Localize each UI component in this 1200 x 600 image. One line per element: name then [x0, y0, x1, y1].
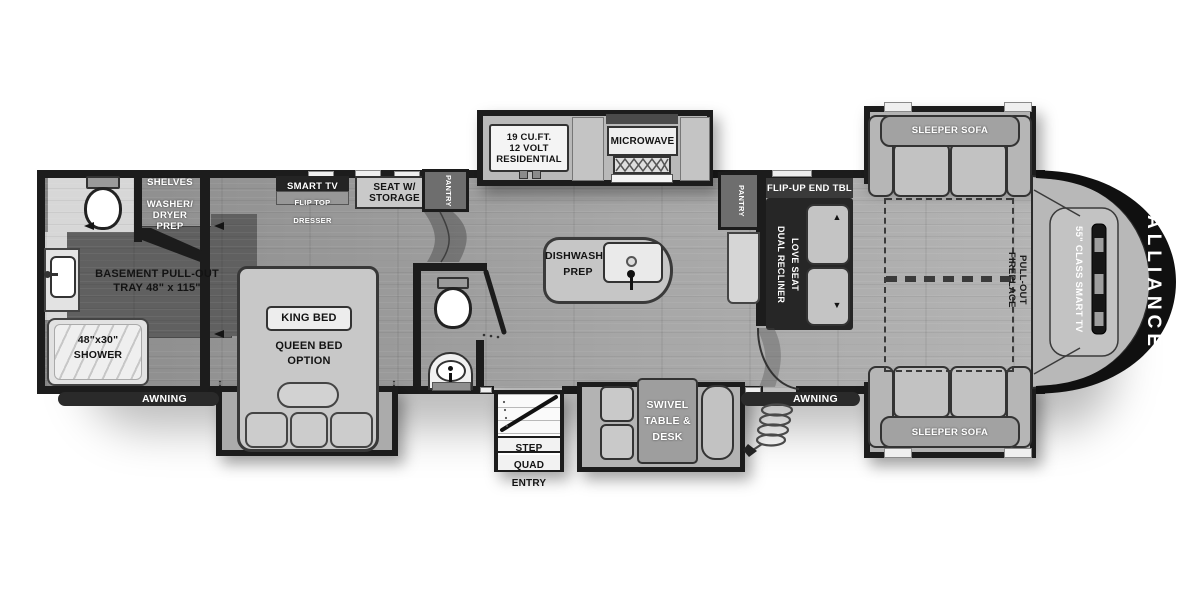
sofa-top-cushion [893, 143, 950, 197]
dinette-chair [600, 424, 634, 460]
midbath-counter [432, 382, 471, 391]
sofa-bottom-cushion [950, 366, 1007, 418]
bedroom-pantry-label: PANTRY [439, 172, 453, 209]
basement-tray-label: BASEMENT PULL-OUT TRAY 48" x 115" [77, 268, 237, 294]
seat-line1: SEAT W/ [373, 182, 415, 193]
swivel-line1: SWIVEL [646, 399, 688, 411]
awning-right: AWNING [741, 392, 860, 406]
smart-tv-cabinet: SMART TV [276, 176, 349, 191]
bottom-wall-c [562, 386, 578, 394]
slide-marker: ↕ [388, 378, 400, 389]
sofa-top-cushion [950, 143, 1007, 197]
slide-guide-dashed [886, 198, 1012, 200]
slide-endcap [884, 448, 912, 458]
loveseat-label-line2: LOVE SEAT [786, 222, 800, 308]
fridge-line2: 12 VOLT [509, 143, 548, 154]
flip-top-dresser: FLIP TOP DRESSER [276, 191, 349, 205]
quad-entry-band: QUAD ENTRY [498, 455, 560, 470]
island-line2: PREP [545, 266, 611, 278]
slide-guide-dashed [886, 370, 1012, 372]
loveseat-label-line1: DUAL RECLINER [772, 204, 786, 326]
washer-line2: DRYER PREP [138, 210, 202, 232]
rear-sink-faucet-stem [50, 273, 58, 276]
seat-line2: STORAGE [369, 193, 420, 204]
kitchen-counter-left [572, 117, 604, 181]
window [772, 170, 812, 177]
shower-line2: SHOWER [54, 349, 142, 361]
step-threshold [480, 387, 492, 393]
quad-entry-label: QUAD ENTRY [512, 460, 547, 489]
fireplace-label-line2: STORAGE [1029, 250, 1043, 312]
fridge-foot [532, 170, 541, 179]
flip-top-dresser-label: FLIP TOP DRESSER [293, 198, 331, 225]
island-sink-drain-icon [626, 256, 637, 267]
entry-cabinet [727, 232, 760, 304]
midbath-top-wall [413, 263, 487, 271]
sofa-bottom-back: SLEEPER SOFA [880, 416, 1020, 448]
microwave-label: MICROWAVE [611, 136, 675, 147]
shelves-label: SHELVES [138, 177, 202, 188]
loveseat-seat-top [806, 204, 850, 265]
kitchen-counter-right [680, 117, 710, 181]
loveseat-seat-bottom [806, 267, 850, 326]
fridge-line3: RESIDENTIAL [496, 154, 562, 165]
sofa-top-back: SLEEPER SOFA [880, 115, 1020, 147]
island-label: DISHWASHER PREP [545, 250, 611, 278]
shower-line1: 48"x30" [54, 334, 142, 346]
tv-label: 55" CLASS SMART TV [1070, 222, 1084, 336]
bed-pillow [330, 412, 373, 448]
dinette-chair [600, 386, 634, 422]
sofa-bottom-cushion [893, 366, 950, 418]
nose-seam [1034, 190, 1080, 216]
microwave: MICROWAVE [607, 126, 678, 156]
slide-endcap [884, 102, 912, 112]
microwave-hood [606, 114, 678, 124]
fridge: 19 CU.FT. 12 VOLT RESIDENTIAL [489, 124, 569, 172]
fireplace-label-line1: PULL-OUT FIREPLACE [1014, 226, 1028, 334]
plug-icon [743, 444, 757, 457]
flip-up-end-table-label: FLIP-UP END TBL [767, 183, 852, 194]
rear-sink-basin [50, 256, 76, 298]
slide-marker: ↕ [214, 378, 226, 389]
pullout-arrow-icon [84, 222, 94, 230]
bedroom-pantry: PANTRY [422, 169, 469, 212]
basement-line1: BASEMENT PULL-OUT [77, 268, 237, 280]
slide-endcap [1004, 448, 1032, 458]
shower-label: 48"x30" SHOWER [54, 334, 142, 361]
queen-option-label: QUEEN BED OPTION [251, 340, 367, 367]
steps-treads [498, 394, 560, 434]
bed-bolster [277, 382, 339, 408]
shelves-text: SHELVES [147, 177, 193, 188]
basement-line2: TRAY 48" x 115" [77, 282, 237, 294]
midbath-faucet-icon [448, 366, 453, 371]
fridge-foot [519, 170, 528, 179]
washer-dryer-label: WASHER/ DRYER PREP [138, 199, 202, 232]
brand-logo: ALLIANCE [1138, 209, 1164, 357]
swivel-table: SWIVEL TABLE & DESK [637, 378, 698, 464]
flip-up-end-table: FLIP-UP END TBL [766, 178, 853, 198]
dinette-bench [701, 385, 734, 460]
king-bed-tag: KING BED [266, 306, 352, 331]
rv-floorplan: SHELVES WASHER/ DRYER PREP 48"x30" SHOWE… [0, 0, 1200, 600]
washer-line1: WASHER/ [138, 199, 202, 210]
king-bed-label: KING BED [281, 312, 336, 324]
sofa-bottom-label: SLEEPER SOFA [912, 427, 988, 438]
awning-left-label: AWNING [58, 392, 219, 406]
range-icon [613, 156, 671, 174]
swivel-line3: DESK [652, 431, 682, 443]
pullout-arrow-icon [214, 222, 224, 230]
midbath-toilet-icon [434, 287, 472, 329]
kitchen-pantry: PANTRY [718, 172, 760, 230]
queen-line2: OPTION [251, 355, 367, 367]
island-line1: DISHWASHER [545, 250, 611, 262]
slide-guide-thick-dashed [886, 276, 1012, 282]
midbath-right-wall [476, 340, 484, 392]
midbath-left-wall [413, 263, 421, 392]
recline-up-icon: ▲ [831, 212, 843, 222]
recline-down-icon: ▼ [831, 300, 843, 310]
slide-guide-dashed [884, 198, 886, 372]
queen-line1: QUEEN BED [251, 340, 367, 352]
range-shelf [611, 174, 673, 183]
fridge-line1: 19 CU.FT. [507, 132, 552, 143]
sofa-top-label: SLEEPER SOFA [912, 125, 988, 136]
awning-left: AWNING [58, 392, 219, 406]
pullout-arrow-icon [214, 330, 224, 338]
step-above-band: STEP ABOVE [498, 436, 560, 453]
kitchen-pantry-label: PANTRY [732, 175, 746, 227]
island-faucet-stem [630, 277, 633, 290]
bed-pillow [245, 412, 288, 448]
midbath-faucet-stem [449, 373, 452, 382]
swivel-line2: TABLE & [644, 415, 691, 427]
bed-pillow [290, 412, 328, 448]
slide-endcap [1004, 102, 1032, 112]
awning-right-label: AWNING [741, 392, 860, 406]
